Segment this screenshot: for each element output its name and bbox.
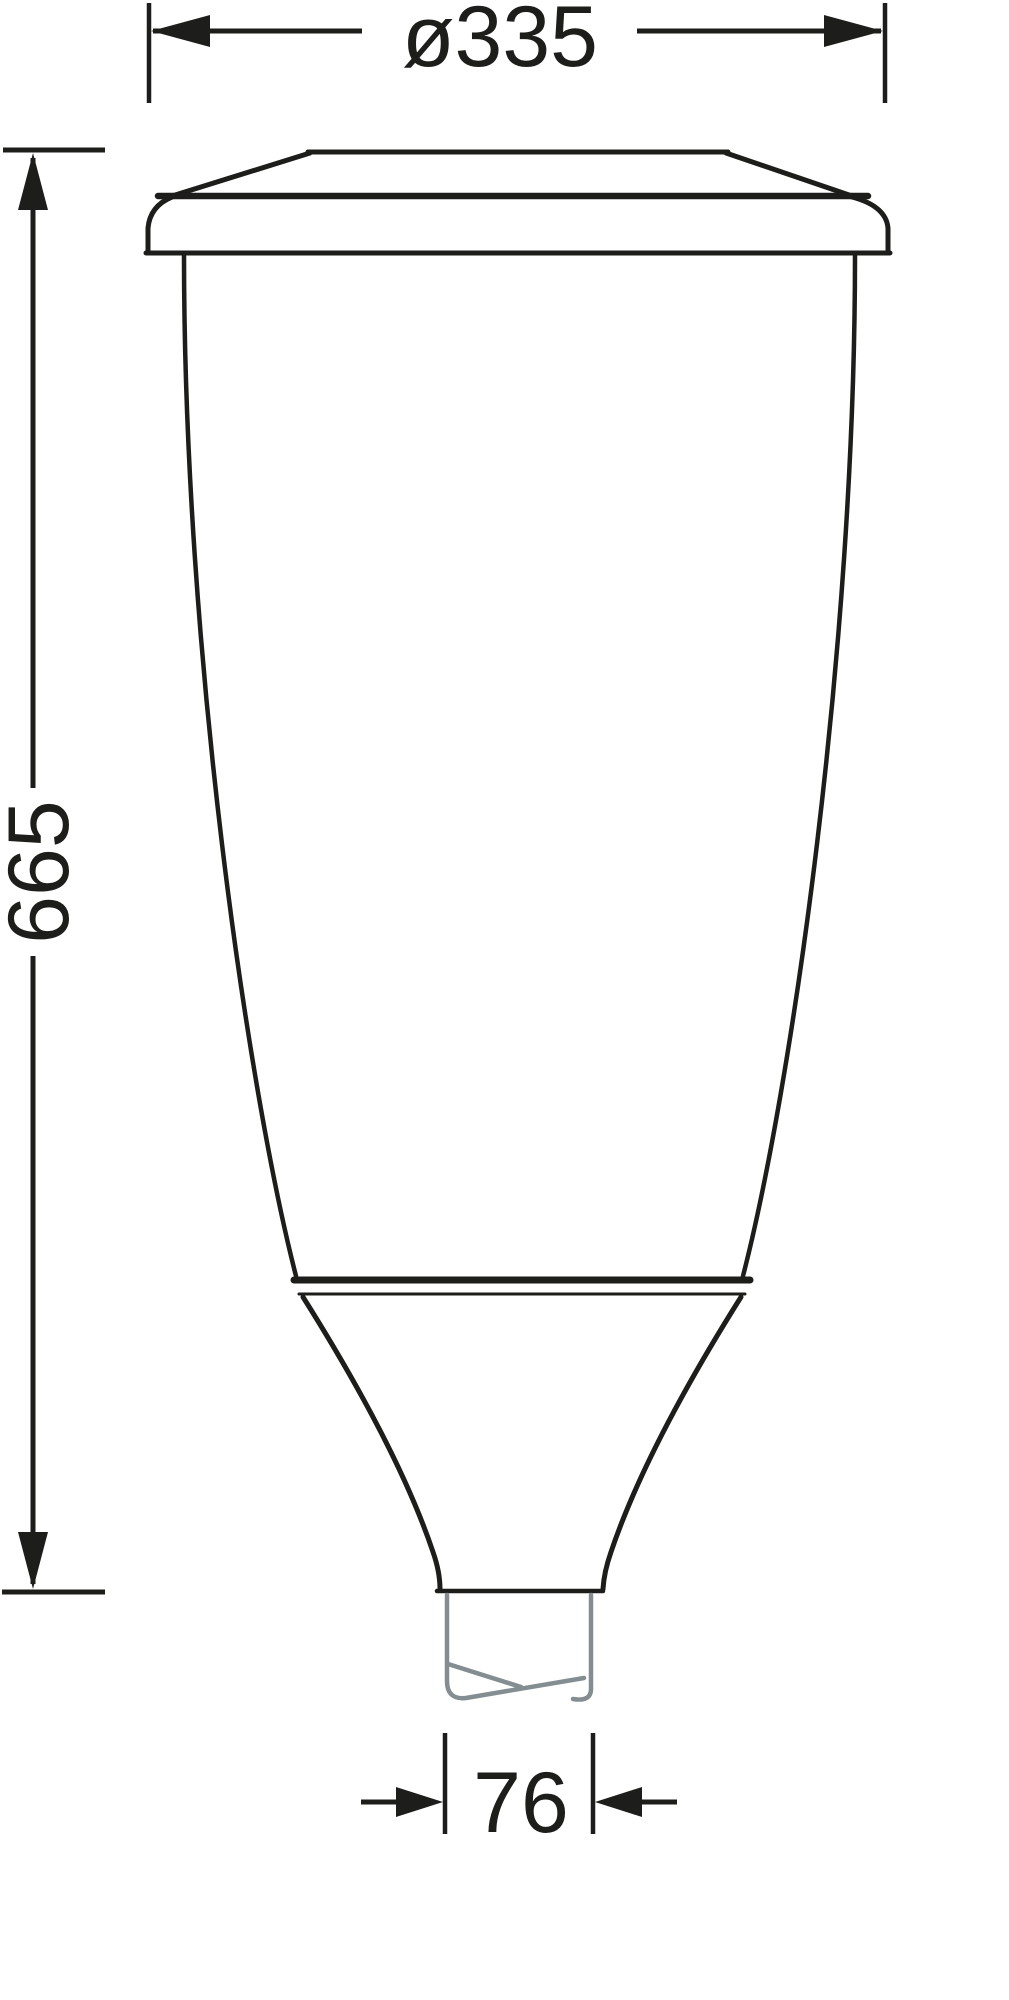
luminaire-dimension-drawing: ø335 665 xyxy=(0,0,1009,2000)
cap-side-right xyxy=(852,197,888,252)
arrow-inward-left-icon xyxy=(595,1787,642,1817)
pole-side-right-with-break xyxy=(573,1595,591,1700)
height-dimension: 665 xyxy=(0,150,105,1592)
arrow-down-icon xyxy=(18,1532,48,1589)
arrow-left-icon xyxy=(151,15,210,47)
pole xyxy=(447,1595,591,1700)
body-side-right xyxy=(743,256,855,1276)
cap-side-left xyxy=(148,197,172,252)
spigot-dimension-label: 76 xyxy=(473,1755,569,1851)
pole-side-left-with-break xyxy=(447,1595,584,1698)
spigot-dimension: 76 xyxy=(361,1733,677,1851)
funnel-side-left xyxy=(303,1297,440,1589)
funnel-side-right xyxy=(603,1297,741,1589)
body-side-left xyxy=(184,256,296,1276)
luminaire-outline xyxy=(146,152,890,1700)
arrow-up-icon xyxy=(18,153,48,210)
dimension-drawing-page: ø335 665 xyxy=(0,0,1009,2000)
lamp-funnel xyxy=(303,1297,741,1591)
width-dimension: ø335 xyxy=(149,0,885,103)
height-dimension-label: 665 xyxy=(0,800,87,944)
lamp-band xyxy=(294,1280,750,1294)
lamp-cap xyxy=(146,152,890,253)
pole-break-diagonal xyxy=(448,1664,521,1687)
cap-shoulder-left xyxy=(172,153,310,196)
arrow-inward-right-icon xyxy=(396,1787,443,1817)
width-dimension-label: ø335 xyxy=(402,0,598,85)
arrow-right-icon xyxy=(824,15,883,47)
lamp-body xyxy=(184,256,855,1276)
cap-shoulder-right xyxy=(726,153,852,196)
